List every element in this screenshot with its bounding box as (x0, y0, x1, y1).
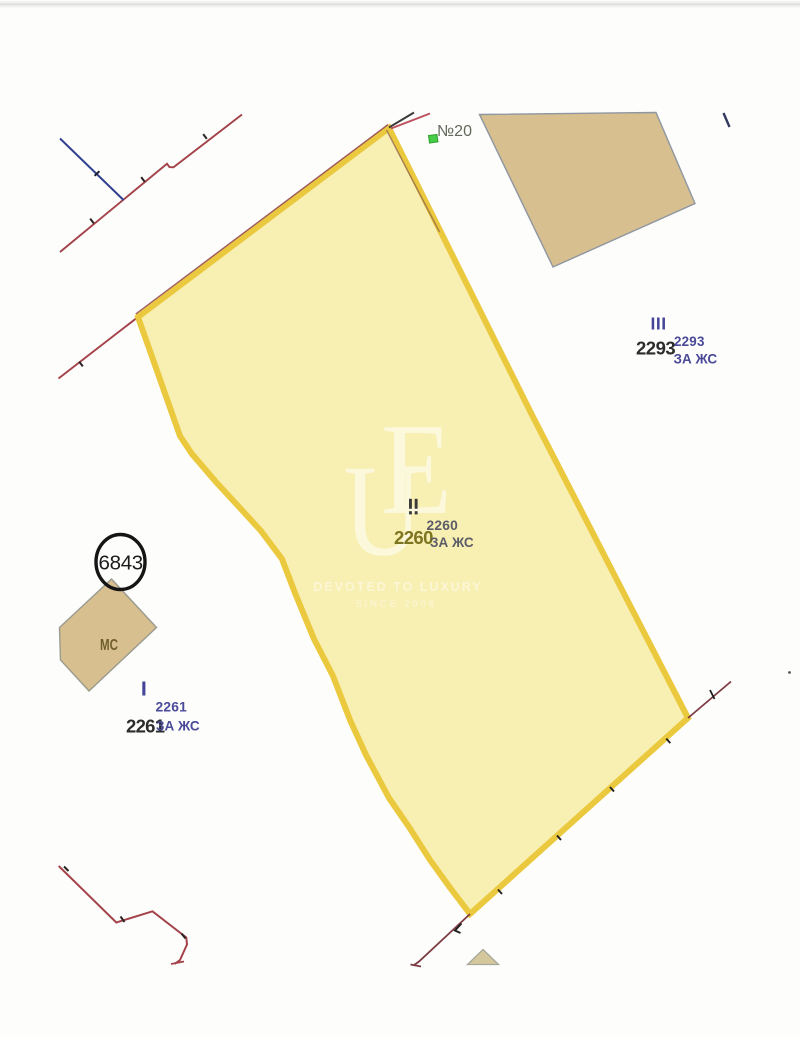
svg-text:№20: №20 (437, 123, 472, 140)
svg-text:МС: МС (100, 637, 118, 654)
svg-text:ЗА ЖС: ЗА ЖС (430, 535, 474, 550)
svg-text:2260: 2260 (394, 527, 433, 548)
svg-text:ЗА ЖС: ЗА ЖС (674, 352, 718, 367)
svg-text:ЗА ЖС: ЗА ЖС (156, 719, 200, 734)
svg-text:2293: 2293 (636, 338, 675, 359)
svg-text:III: III (651, 314, 667, 334)
svg-text:2261: 2261 (156, 699, 188, 714)
svg-text:6843: 6843 (99, 552, 143, 575)
svg-text:SINCE 2006: SINCE 2006 (355, 599, 437, 610)
svg-text:2293: 2293 (674, 334, 705, 349)
svg-text:DEVOTED TO LUXURY: DEVOTED TO LUXURY (313, 580, 482, 594)
